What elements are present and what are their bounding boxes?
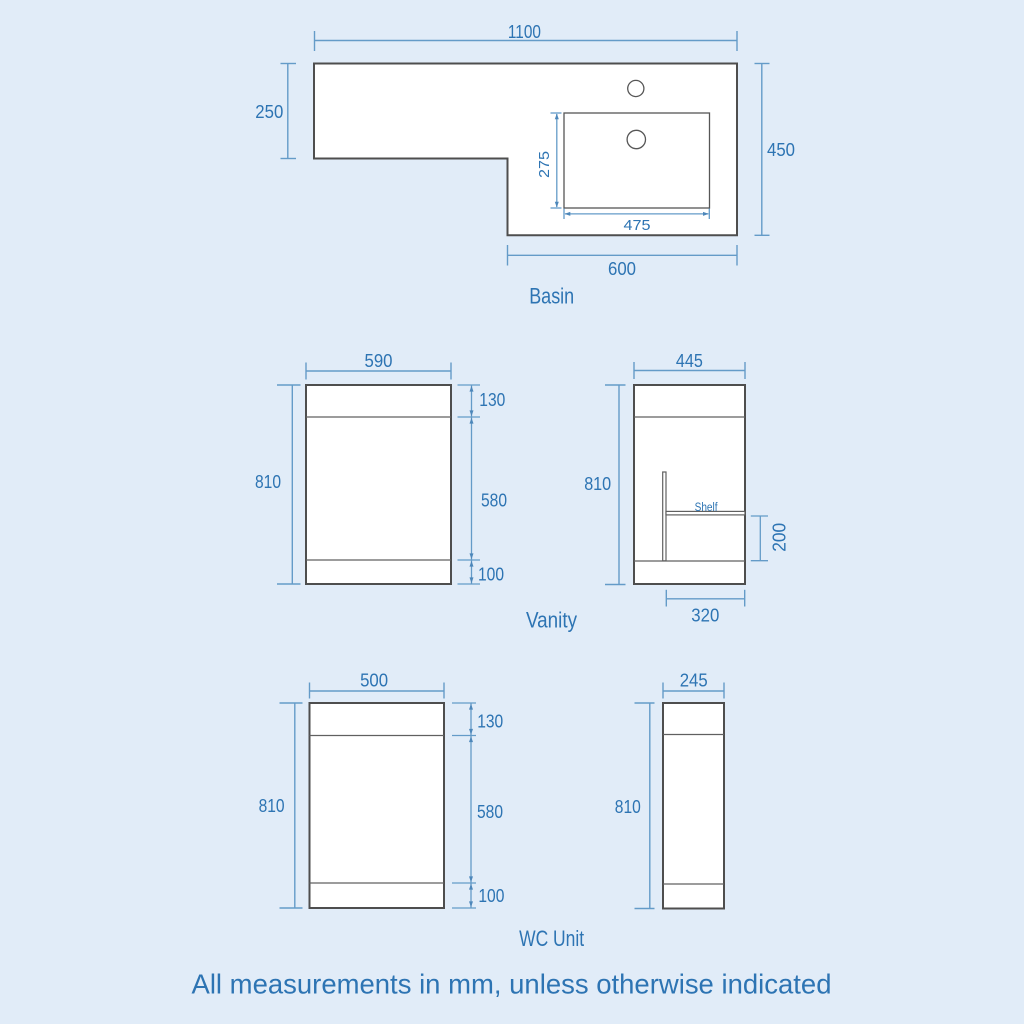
svg-text:275: 275 <box>536 151 553 178</box>
svg-text:100: 100 <box>478 886 504 906</box>
svg-text:250: 250 <box>255 102 283 122</box>
svg-text:810: 810 <box>615 797 641 817</box>
svg-text:450: 450 <box>767 140 795 160</box>
svg-text:475: 475 <box>624 217 651 234</box>
svg-text:810: 810 <box>584 474 611 494</box>
svg-text:130: 130 <box>479 390 505 410</box>
svg-text:810: 810 <box>259 796 285 816</box>
svg-text:500: 500 <box>360 671 388 691</box>
svg-text:580: 580 <box>481 491 507 511</box>
svg-text:130: 130 <box>477 712 503 732</box>
svg-text:580: 580 <box>477 802 503 822</box>
svg-text:Basin: Basin <box>529 284 574 309</box>
svg-text:810: 810 <box>255 472 281 492</box>
svg-text:100: 100 <box>478 565 504 585</box>
svg-text:320: 320 <box>691 606 719 626</box>
svg-text:Shelf: Shelf <box>695 502 719 514</box>
svg-text:245: 245 <box>680 671 708 691</box>
svg-text:1100: 1100 <box>508 22 541 42</box>
svg-text:590: 590 <box>365 351 393 371</box>
svg-text:All measurements in mm, unless: All measurements in mm, unless otherwise… <box>192 969 832 1000</box>
svg-text:WC Unit: WC Unit <box>519 926 584 951</box>
svg-text:600: 600 <box>608 259 636 279</box>
svg-text:Vanity: Vanity <box>526 608 577 633</box>
svg-text:445: 445 <box>676 351 703 371</box>
svg-text:200: 200 <box>770 523 790 552</box>
